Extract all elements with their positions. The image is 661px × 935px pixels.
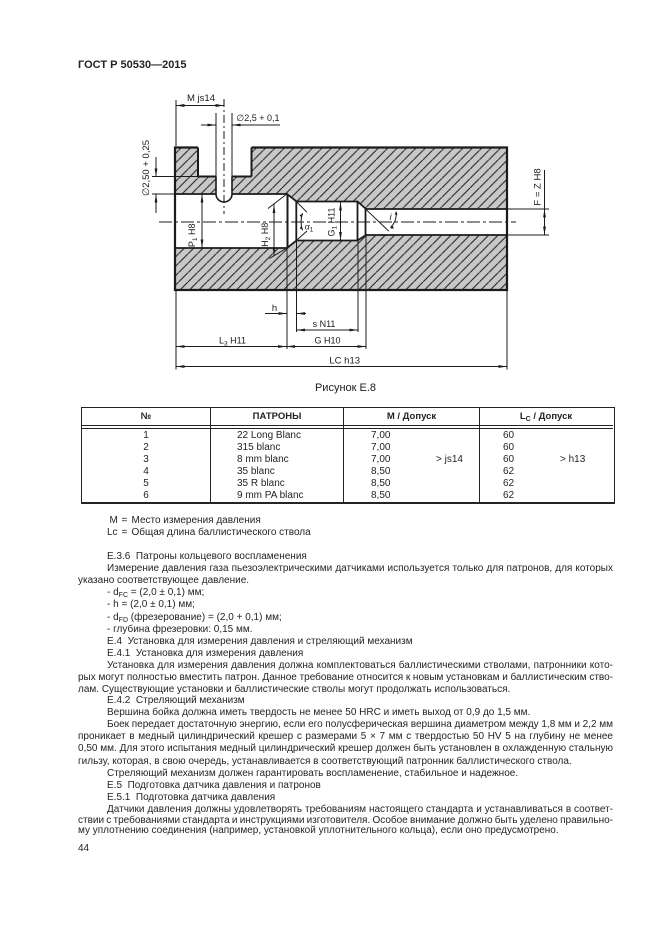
svg-text:LC h13: LC h13 <box>329 356 360 367</box>
svg-text:G H10: G H10 <box>314 336 340 346</box>
svg-text:M js14: M js14 <box>187 93 215 104</box>
svg-text:Рисунок Е.8: Рисунок Е.8 <box>315 382 376 394</box>
svg-text:h: h <box>272 303 277 314</box>
svg-text:∅2,5 + 0,1: ∅2,5 + 0,1 <box>236 113 279 123</box>
svg-text:∅2,50 + 0,25: ∅2,50 + 0,25 <box>141 140 152 196</box>
svg-text:s N11: s N11 <box>313 319 336 329</box>
svg-text:L3 H11: L3 H11 <box>219 336 246 348</box>
svg-text:F = Z H8: F = Z H8 <box>533 168 544 205</box>
